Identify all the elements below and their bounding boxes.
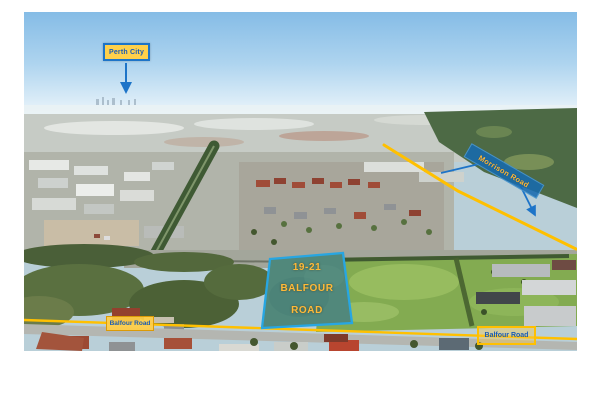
perth-city-label-text: Perth City (109, 49, 144, 56)
parcel-boundary (262, 253, 352, 328)
balfour-road-label-east-text: Balfour Road (485, 332, 529, 339)
balfour-road-label-west-text: Balfour Road (110, 320, 151, 327)
sky (24, 12, 577, 117)
balfour-road-label-west: Balfour Road (106, 316, 154, 331)
perth-city-label: Perth City (103, 43, 150, 61)
aerial-photo: Perth City Morrison Road Balfour Road Ba… (24, 12, 577, 351)
balfour-road-label-east: Balfour Road (477, 326, 536, 345)
aerial-photo-art (24, 12, 577, 351)
